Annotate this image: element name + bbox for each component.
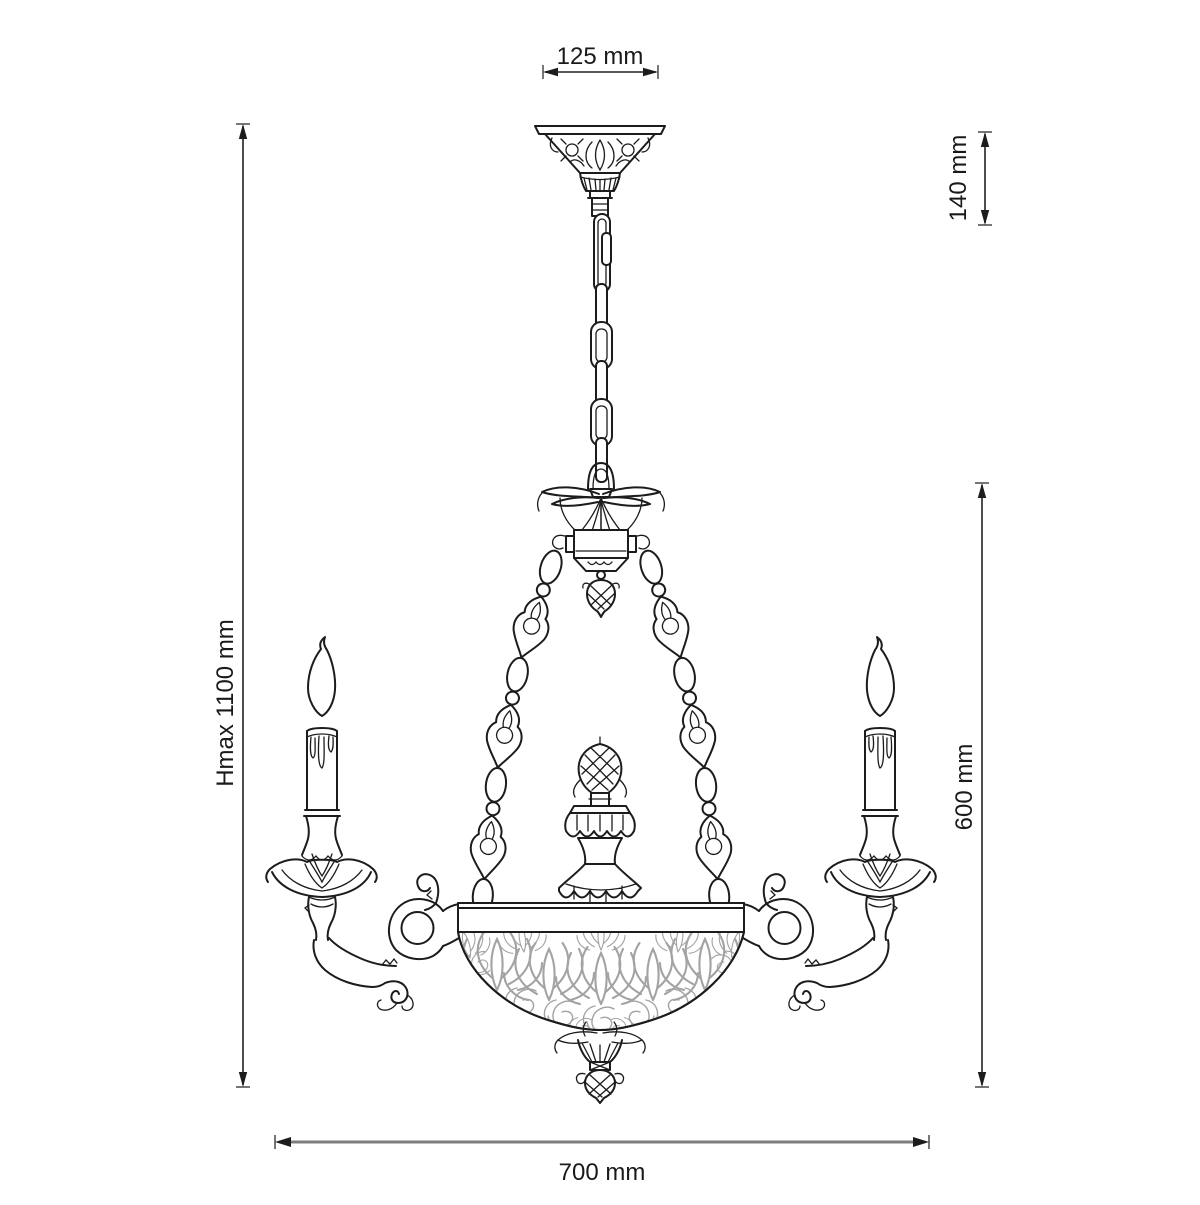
bowl [439, 903, 763, 1038]
candle-stem [305, 897, 336, 940]
hub-cube [553, 530, 650, 617]
dimension-label-body-height: 600 mm [951, 744, 978, 831]
dimension-body-height: 600 mm [951, 483, 989, 1087]
dimension-label-body-width: 700 mm [559, 1159, 646, 1186]
dimension-label-suspension-height: 140 mm [945, 135, 972, 222]
dimension-max-height: Hmax 1100 mm [212, 124, 250, 1087]
bowl-bottom-finial [555, 1022, 645, 1103]
chandelier-technical-drawing: 125 mm 140 mm Hmax 1100 mm 600 mm 700 mm [0, 0, 1200, 1200]
drawing-canvas: 125 mm 140 mm Hmax 1100 mm 600 mm 700 mm [0, 0, 1200, 1200]
suspension-chain [588, 198, 614, 497]
dimension-label-max-height: Hmax 1100 mm [212, 619, 239, 787]
flame [308, 637, 335, 716]
canopy [535, 126, 665, 198]
dimension-suspension-height: 140 mm [945, 132, 992, 225]
candle [307, 728, 337, 810]
dimension-canopy-width: 125 mm [543, 43, 658, 79]
dimension-body-width: 700 mm [275, 1135, 929, 1186]
bobeche [266, 859, 376, 897]
candle-socket [302, 810, 342, 876]
dimension-label-canopy-width: 125 mm [557, 43, 644, 70]
center-finial [559, 737, 641, 902]
swag-chain [467, 546, 572, 914]
